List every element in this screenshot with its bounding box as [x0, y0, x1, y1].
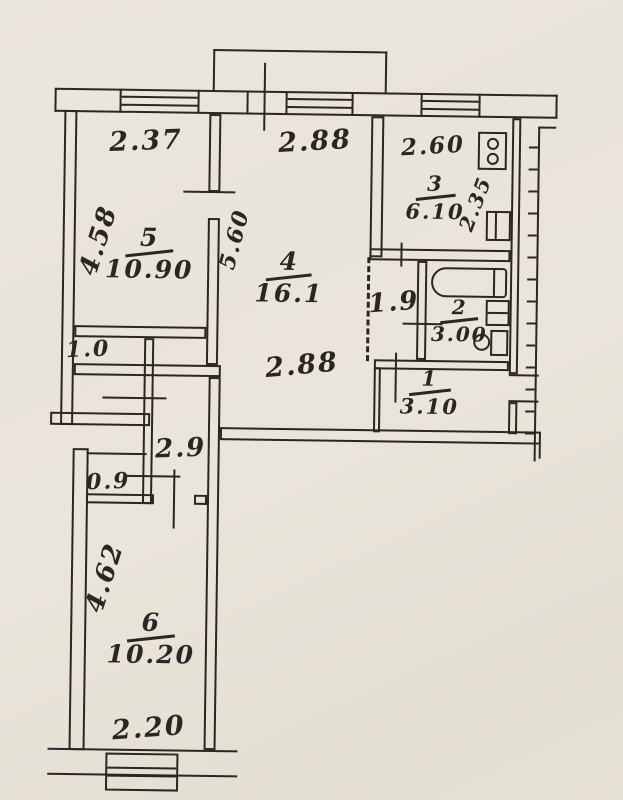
room6-top-wall-right: [194, 495, 207, 505]
kitchen-door-jamb: [400, 243, 402, 267]
balcony-door-jamb-left: [246, 90, 248, 114]
closet-lower-width-label: 0.9: [86, 470, 131, 494]
corridor-room6-right-wall: [204, 377, 221, 750]
room4-width-top-label: 2.88: [277, 126, 352, 157]
room6-depth-label: 4.62: [82, 540, 129, 616]
room4-width-bottom-label: 2.88: [264, 348, 340, 382]
closet-upper-width-label: 1.0: [66, 337, 111, 361]
hallway-left-wall: [373, 367, 381, 432]
window-room5: [119, 89, 199, 114]
window-kitchen: [420, 93, 480, 118]
corridor-left-wall: [142, 338, 154, 504]
room4-number: 4: [279, 249, 299, 274]
flat-bottom-wall: [220, 427, 541, 444]
balcony-wall-left: [213, 49, 216, 92]
room5-area-label: 5 10.90: [105, 224, 194, 282]
room6-door-jamb: [173, 469, 176, 528]
hallway-area-label: 1 3.10: [400, 367, 460, 416]
flat-bottom-wall-end: [539, 445, 541, 459]
floor-plan-drawing: 2.37 2.88 2.60 4.58 5.60 2.35 1.9 2.88 1…: [0, 0, 623, 800]
door-mark-room5: [183, 191, 235, 194]
kitchen-sink-icon: [486, 211, 511, 241]
bathroom-area-label: 2 3.00: [431, 297, 488, 344]
corridor-upper-width-label: 1.9: [367, 288, 420, 318]
room6-width-label: 2.20: [111, 712, 187, 744]
balcony-wall-top: [213, 49, 387, 53]
hallway-number: 1: [421, 368, 438, 389]
kitchen-area: 6.10: [405, 200, 464, 222]
bathroom-area: 3.00: [431, 323, 488, 344]
bathroom-number: 2: [452, 297, 468, 317]
wash-basin-icon: [485, 300, 509, 326]
room4-area: 16.1: [254, 280, 323, 306]
closet-lower-door-mark: [124, 475, 180, 478]
corridor-lower-length-label: 2.9: [155, 435, 207, 463]
scanned-floor-plan-page: 2.37 2.88 2.60 4.58 5.60 2.35 1.9 2.88 1…: [0, 0, 623, 800]
kitchen-number: 3: [427, 173, 444, 194]
outer-wall-bottom-left: [50, 412, 150, 426]
room4-area-label: 4 16.1: [254, 248, 324, 305]
room6-number: 6: [141, 610, 161, 635]
room5-number: 5: [140, 225, 160, 250]
door-mark-vestibule: [102, 396, 166, 399]
kitchen-bottom-wall: [369, 248, 510, 262]
balcony-wall-right: [385, 51, 388, 94]
stove-burner-bottom: [487, 153, 499, 165]
stove-icon: [478, 132, 508, 170]
partition-room5-room4-lower: [206, 218, 220, 365]
wash-basin-line: [488, 312, 508, 314]
landing-edge-cap: [538, 127, 556, 129]
outer-wall-right-cap: [555, 95, 557, 119]
partition-room5-room4-upper: [208, 114, 221, 192]
room5-area: 10.90: [105, 256, 194, 282]
bathtub-end-divider: [493, 270, 495, 296]
room4-depth-label: 5.60: [216, 207, 253, 272]
hallway-area: 3.10: [400, 395, 459, 417]
room6-area-label: 6 10.20: [107, 609, 196, 667]
kitchen-area-label: 3 6.10: [405, 172, 465, 221]
balcony-door-centerline: [263, 63, 266, 131]
toilet-tank-icon: [490, 330, 508, 356]
window-room6: [105, 753, 179, 792]
stove-burner-top: [487, 138, 499, 150]
window-room4: [285, 91, 353, 116]
hallway-door-jamb: [394, 353, 397, 403]
closet-lower-top-line: [87, 452, 147, 455]
entrance-door-jamb-top: [509, 374, 539, 376]
kitchen-sink-divider: [495, 213, 497, 239]
room6-area: 10.20: [107, 641, 196, 667]
right-wall-upper: [509, 118, 522, 374]
right-wall-lower: [508, 402, 517, 434]
outer-wall-left-cap: [54, 88, 56, 112]
kitchen-left-wall: [369, 116, 384, 257]
kitchen-width-label: 2.60: [400, 133, 465, 160]
room5-width-label: 2.37: [109, 126, 184, 156]
entrance-door-jamb-bottom: [508, 400, 538, 402]
bathtub-icon: [431, 267, 507, 298]
